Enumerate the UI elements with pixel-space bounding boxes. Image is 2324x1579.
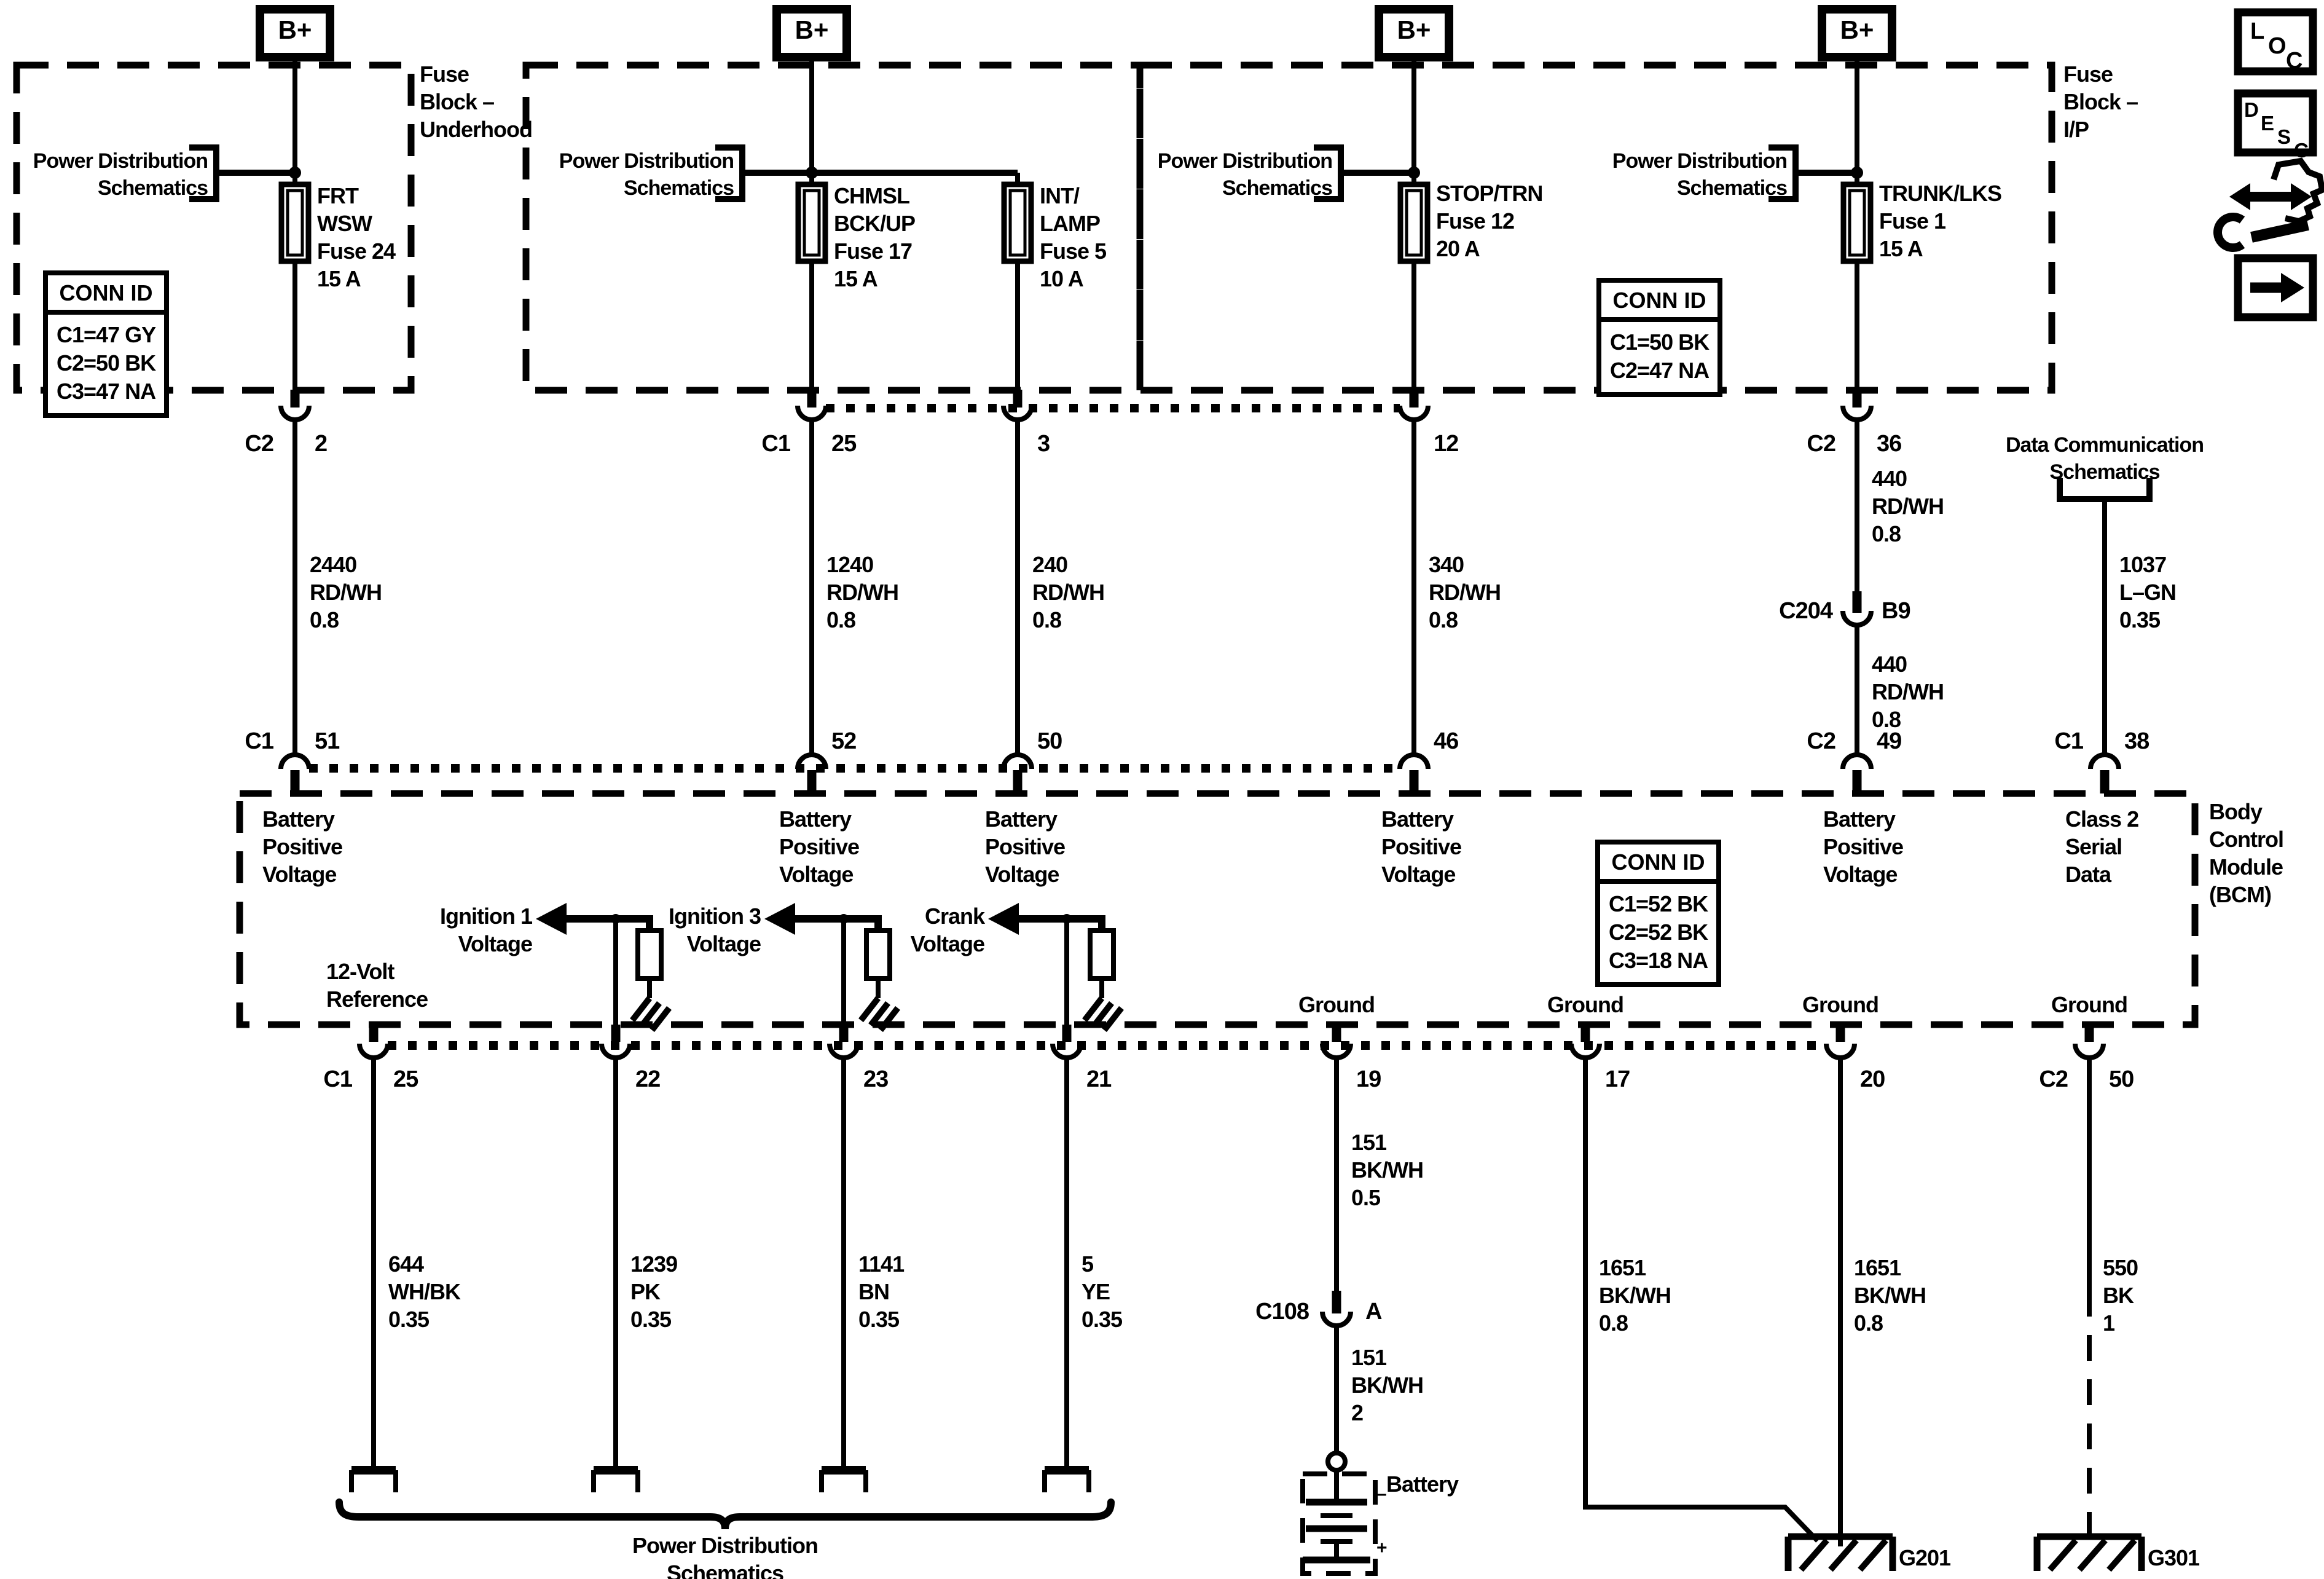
pin-c2-36-num: 36 <box>1877 430 1901 458</box>
bcm-batt-pos-1: Battery Positive Voltage <box>262 805 342 888</box>
bcm-class2-label: Class 2 Serial Data <box>2065 805 2138 888</box>
pin-20-num: 20 <box>1860 1066 1885 1093</box>
wire-label-5: 5 YE 0.35 <box>1082 1250 1122 1333</box>
desc-letter-s: S <box>2277 125 2291 149</box>
fuse-block-ip-label: Fuse Block – I/P <box>2063 60 2138 143</box>
pin-c1-51-conn: C1 <box>200 728 273 755</box>
wiring-diagram-page: B+ B+ B+ B+ Power Distribution Schematic… <box>0 0 2324 1579</box>
wire-label-240: 240 RD/WH 0.8 <box>1032 551 1104 634</box>
pin-c2-2-conn: C2 <box>200 430 273 458</box>
bcm-ignition3-label: Ignition 3 Voltage <box>576 902 761 958</box>
pds-ref-4: Power Distribution Schematics <box>1541 148 1787 202</box>
wire-label-550: 550 BK 1 <box>2103 1254 2138 1337</box>
wire-label-1239: 1239 PK 0.35 <box>630 1250 677 1333</box>
pin-c2-50-conn: C2 <box>1994 1066 2068 1093</box>
pds-ref-3: Power Distribution Schematics <box>1086 148 1332 202</box>
pin-c2-36-conn: C2 <box>1762 430 1835 458</box>
wire-label-2440: 2440 RD/WH 0.8 <box>310 551 382 634</box>
brace <box>339 1502 1111 1529</box>
battery-symbol <box>1303 1453 1375 1573</box>
wire-label-1240: 1240 RD/WH 0.8 <box>826 551 898 634</box>
wire-label-1141: 1141 BN 0.35 <box>858 1250 904 1333</box>
pds-ref-2: Power Distribution Schematics <box>488 148 734 202</box>
conn-id-box-bcm: CONN ID C1=52 BK C2=52 BK C3=18 NA <box>1595 840 1721 987</box>
conn-id-box-underhood: CONN ID C1=47 GY C2=50 BK C3=47 NA <box>43 270 169 418</box>
conn-id-title: CONN ID <box>48 275 164 315</box>
b-plus-label-4: B+ <box>1822 16 1892 44</box>
bcm-module-name: Body Control Module (BCM) <box>2209 798 2283 908</box>
g301-label: G301 <box>2148 1544 2199 1572</box>
pin-22-num: 22 <box>635 1066 660 1093</box>
pin-c1-25-num: 25 <box>831 430 856 458</box>
pin-c2-49-conn: C2 <box>1762 728 1835 755</box>
pin-17-num: 17 <box>1605 1066 1630 1093</box>
bcm-ground-label-2: Ground <box>1518 991 1653 1018</box>
pin-21-num: 21 <box>1086 1066 1111 1093</box>
forward-arrow-hotspot[interactable] <box>2238 258 2313 317</box>
wire-label-644: 644 WH/BK 0.35 <box>388 1250 460 1333</box>
bcm-ignition1-label: Ignition 1 Voltage <box>348 902 532 958</box>
pin-c1-51-num: 51 <box>315 728 339 755</box>
connectors-bcm-bottom-row <box>359 1025 2103 1058</box>
pin-c204-conn: C204 <box>1728 597 1832 625</box>
connectors-bcm-top-row <box>281 755 2119 793</box>
loc-letter-o: O <box>2268 33 2287 60</box>
fuse-stop-trn-label: STOP/TRN Fuse 12 20 A <box>1436 179 1542 262</box>
fuse-int-lamp-label: INT/ LAMP Fuse 5 10 A <box>1040 182 1106 293</box>
desc-letter-c: C <box>2294 139 2309 162</box>
fuse-frt-wsw-label: FRT WSW Fuse 24 15 A <box>317 182 395 293</box>
pin-c204-cavity: B9 <box>1882 597 1910 625</box>
conn-id-title: CONN ID <box>1601 283 1717 322</box>
terminal-pads <box>351 1470 1089 1492</box>
pin-c108-conn: C108 <box>1204 1298 1309 1326</box>
ground-g301 <box>2037 1537 2141 1571</box>
g201-label: G201 <box>1899 1544 1950 1572</box>
pin-c1-25b-num: 25 <box>393 1066 418 1093</box>
wire-label-1651-a: 1651 BK/WH 0.8 <box>1599 1254 1671 1337</box>
wire-label-340: 340 RD/WH 0.8 <box>1429 551 1501 634</box>
bcm-batt-pos-2: Battery Positive Voltage <box>779 805 859 888</box>
fuse-trunk-lks-label: TRUNK/LKS Fuse 1 15 A <box>1879 179 2001 262</box>
bcm-batt-pos-4: Battery Positive Voltage <box>1381 805 1461 888</box>
desc-letter-d: D <box>2244 98 2259 122</box>
loc-letter-l: L <box>2250 18 2264 45</box>
conn-id-title: CONN ID <box>1600 845 1716 884</box>
fuse-chmsl-label: CHMSL BCK/UP Fuse 17 15 A <box>834 182 915 293</box>
pin-19-num: 19 <box>1356 1066 1381 1093</box>
wire-label-151-lower: 151 BK/WH 2 <box>1351 1344 1423 1427</box>
bcm-ground-label-1: Ground <box>1269 991 1404 1018</box>
pds-bottom-label: Power Distribution Schematics <box>510 1532 940 1579</box>
pin-52-num: 52 <box>831 728 856 755</box>
bcm-ground-label-4: Ground <box>2022 991 2157 1018</box>
pin-23-num: 23 <box>863 1066 888 1093</box>
connector-c108 <box>1322 1291 1351 1326</box>
data-comm-label: Data Communication Schematics <box>1933 431 2277 486</box>
pin-12-num: 12 <box>1434 430 1458 458</box>
loc-letter-c: C <box>2286 48 2302 74</box>
wire-label-151-upper: 151 BK/WH 0.5 <box>1351 1128 1423 1211</box>
pin-c1-25b-conn: C1 <box>278 1066 352 1093</box>
wire-label-1651-b: 1651 BK/WH 0.8 <box>1854 1254 1926 1337</box>
battery-minus: – <box>1376 1484 1386 1505</box>
pin-c1-38-num: 38 <box>2124 728 2149 755</box>
wire-label-1037: 1037 L–GN 0.35 <box>2119 551 2176 634</box>
pin-3-num: 3 <box>1037 430 1050 458</box>
b-plus-terminal-boxes <box>260 9 1892 57</box>
pin-50-num: 50 <box>1037 728 1062 755</box>
conn-id-rows: C1=47 GY C2=50 BK C3=47 NA <box>48 315 164 413</box>
conn-id-box-ip: CONN ID C1=50 BK C2=47 NA <box>1596 278 1722 397</box>
fuse-block-underhood-label: Fuse Block – Underhood <box>420 60 532 143</box>
pds-ref-1: Power Distribution Schematics <box>0 148 208 202</box>
pin-c2-49-num: 49 <box>1877 728 1901 755</box>
connector-c204 <box>1843 591 1871 625</box>
b-plus-label-2: B+ <box>777 16 847 44</box>
wire-label-440-lower: 440 RD/WH 0.8 <box>1872 650 1944 733</box>
wires <box>295 57 2105 1546</box>
pin-c2-2-num: 2 <box>315 430 327 458</box>
bcm-12v-ref-label: 12-Volt Reference <box>326 958 428 1013</box>
conn-id-rows: C1=50 BK C2=47 NA <box>1601 322 1717 392</box>
pin-c1-38-conn: C1 <box>2009 728 2083 755</box>
battery-label: Battery <box>1386 1470 1458 1498</box>
b-plus-label-3: B+ <box>1379 16 1449 44</box>
b-plus-label-1: B+ <box>260 16 330 44</box>
bcm-batt-pos-5: Battery Positive Voltage <box>1823 805 1903 888</box>
battery-plus: + <box>1376 1538 1387 1559</box>
desc-letter-e: E <box>2261 112 2274 135</box>
pin-c108-cavity: A <box>1365 1298 1381 1326</box>
bcm-batt-pos-3: Battery Positive Voltage <box>985 805 1065 888</box>
wrench-icon-hotspot[interactable] <box>2224 161 2324 247</box>
pin-46-num: 46 <box>1434 728 1458 755</box>
bcm-ground-label-3: Ground <box>1773 991 1908 1018</box>
pin-c2-50-num: 50 <box>2109 1066 2134 1093</box>
conn-id-rows: C1=52 BK C2=52 BK C3=18 NA <box>1600 884 1716 982</box>
pin-c1-25-conn: C1 <box>716 430 790 458</box>
bcm-crank-label: Crank Voltage <box>800 902 984 958</box>
